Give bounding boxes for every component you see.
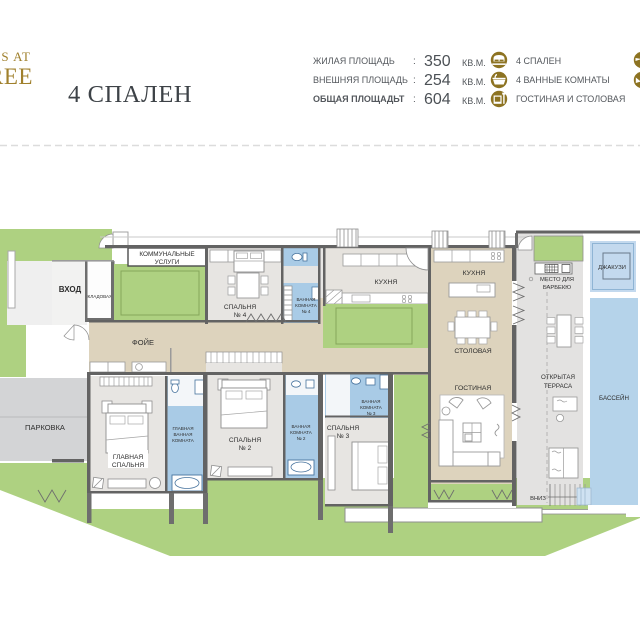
svg-text::: : [413,56,416,67]
svg-text:ВАННАЯ: ВАННАЯ [292,424,311,429]
svg-text:ДЖАКУЗИ: ДЖАКУЗИ [598,265,626,271]
svg-text:КУХНЯ: КУХНЯ [375,279,398,286]
svg-text:ОТКРЫТАЯ: ОТКРЫТАЯ [541,374,575,381]
svg-text:4 ВАННЫЕ КОМНАТЫ: 4 ВАННЫЕ КОМНАТЫ [516,75,610,85]
svg-text:ВАННАЯ: ВАННАЯ [174,432,193,437]
svg-text:КОМНАТА: КОМНАТА [360,405,383,410]
svg-text:4 СПАЛЕН: 4 СПАЛЕН [516,56,561,66]
svg-text:КОММУНАЛЬНЫЕ: КОММУНАЛЬНЫЕ [139,251,194,258]
svg-text:№ 3: № 3 [367,411,376,416]
svg-text:ПАРКОВКА: ПАРКОВКА [25,423,65,432]
svg-text:№ 2: № 2 [239,445,252,452]
svg-text:КВ.М.: КВ.М. [462,58,486,68]
svg-text:№ 4: № 4 [234,312,247,319]
svg-text:ГОСТИНАЯ: ГОСТИНАЯ [455,385,492,392]
svg-text:КЛАДОВАЯ: КЛАДОВАЯ [88,294,113,299]
svg-text:УСЛУГИ: УСЛУГИ [155,259,180,266]
svg-text:СПАЛЬНЯ: СПАЛЬНЯ [229,437,261,444]
svg-text:СПАЛЬНЯ: СПАЛЬНЯ [112,462,144,469]
svg-text::: : [413,75,416,86]
svg-text:ФОЙЕ: ФОЙЕ [132,338,154,347]
svg-text:МЕСТО ДЛЯ: МЕСТО ДЛЯ [540,277,574,283]
svg-text:ГОСТИНАЯ И СТОЛОВАЯ: ГОСТИНАЯ И СТОЛОВАЯ [516,94,625,104]
svg-text:КВ.М.: КВ.М. [462,96,486,106]
svg-text:350: 350 [424,53,451,70]
svg-text:254: 254 [424,72,451,89]
svg-text:№ 2: № 2 [297,436,306,441]
svg-text:КУХНЯ: КУХНЯ [463,270,486,277]
svg-text:ВАННАЯ: ВАННАЯ [297,297,316,302]
svg-text:СПАЛЬНЯ: СПАЛЬНЯ [327,425,359,432]
svg-text:604: 604 [424,91,451,108]
svg-text:БАССЕЙН: БАССЕЙН [599,394,629,402]
svg-text:ВАННАЯ: ВАННАЯ [362,399,381,404]
svg-text:ТЕРРАСА: ТЕРРАСА [544,383,573,390]
svg-text:КОМНАТА: КОМНАТА [295,303,318,308]
svg-text:ВНИЗ: ВНИЗ [530,496,546,502]
svg-text::: : [413,94,416,105]
svg-text:REE: REE [0,64,33,89]
svg-text:S AT: S AT [1,49,31,64]
svg-text:4 СПАЛЕН: 4 СПАЛЕН [68,81,192,108]
svg-text:СПАЛЬНЯ: СПАЛЬНЯ [224,304,256,311]
svg-text:ГЛАВНАЯ: ГЛАВНАЯ [172,426,193,431]
svg-text:№ 4: № 4 [302,309,311,314]
svg-text:КОМНАТА: КОМНАТА [290,430,313,435]
svg-text:ОБЩАЯ ПЛОЩАДЬТ: ОБЩАЯ ПЛОЩАДЬТ [313,94,405,104]
svg-text:КОМНАТА: КОМНАТА [172,438,195,443]
svg-text:СТОЛОВАЯ: СТОЛОВАЯ [454,348,491,355]
svg-text:ГЛАВНАЯ: ГЛАВНАЯ [113,454,143,461]
svg-text:КВ.М.: КВ.М. [462,77,486,87]
svg-text:ВНЕШНЯЯ ПЛОЩАДЬ: ВНЕШНЯЯ ПЛОЩАДЬ [313,75,408,85]
svg-text:ЖИЛАЯ ПЛОЩАДЬ: ЖИЛАЯ ПЛОЩАДЬ [313,56,395,66]
svg-text:№ 3: № 3 [337,433,350,440]
svg-text:ВХОД: ВХОД [59,285,82,294]
